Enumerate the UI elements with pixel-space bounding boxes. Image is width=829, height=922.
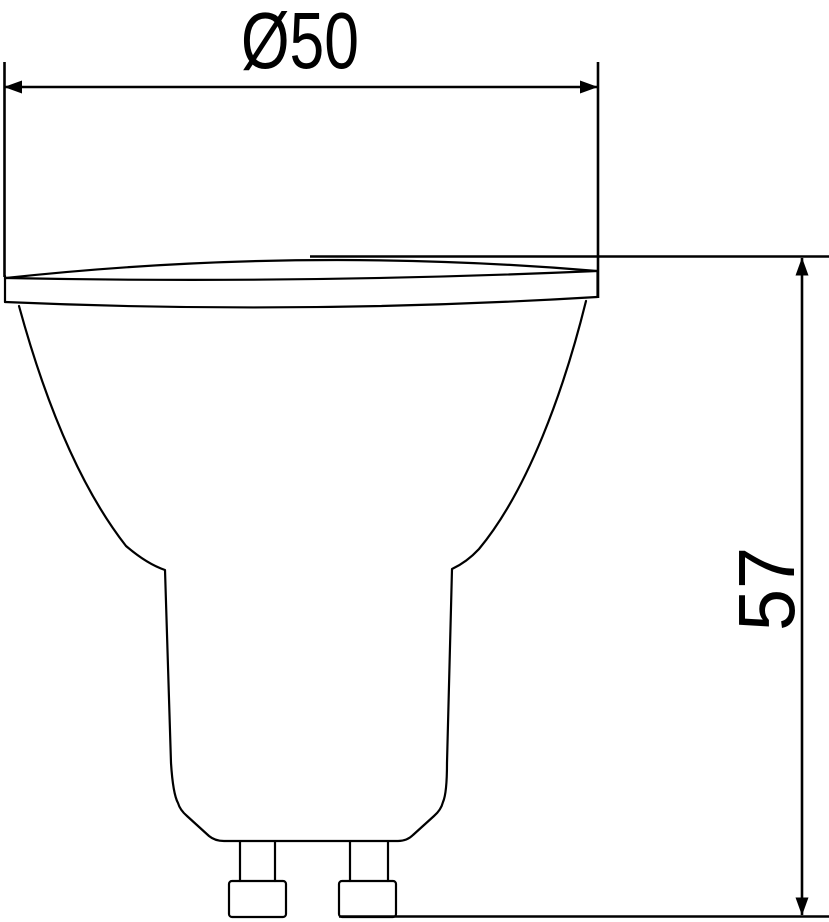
right-pin-shank bbox=[350, 842, 388, 881]
diameter-arrow-right bbox=[580, 81, 598, 94]
height-dimension: 57 bbox=[310, 257, 829, 917]
left-pin-shank bbox=[240, 842, 275, 881]
diameter-dimension: Ø50 bbox=[4, 0, 598, 298]
lamp-face-front-edge bbox=[6, 271, 597, 280]
diameter-dimension-label: Ø50 bbox=[241, 0, 359, 85]
dimension-drawing: Ø50 57 bbox=[0, 0, 829, 922]
height-arrow-down bbox=[796, 898, 809, 916]
lamp-rim-bottom-edge bbox=[5, 297, 597, 307]
lamp-outline bbox=[5, 260, 598, 917]
height-dimension-label: 57 bbox=[722, 547, 811, 631]
left-pin-cap bbox=[229, 881, 286, 917]
lamp-body-outline bbox=[19, 301, 586, 841]
drawing-svg: Ø50 57 bbox=[0, 0, 829, 922]
right-pin-cap bbox=[339, 881, 396, 917]
right-pin bbox=[339, 842, 396, 917]
diameter-arrow-left bbox=[4, 81, 22, 94]
height-arrow-up bbox=[796, 258, 809, 276]
left-pin bbox=[229, 842, 286, 917]
